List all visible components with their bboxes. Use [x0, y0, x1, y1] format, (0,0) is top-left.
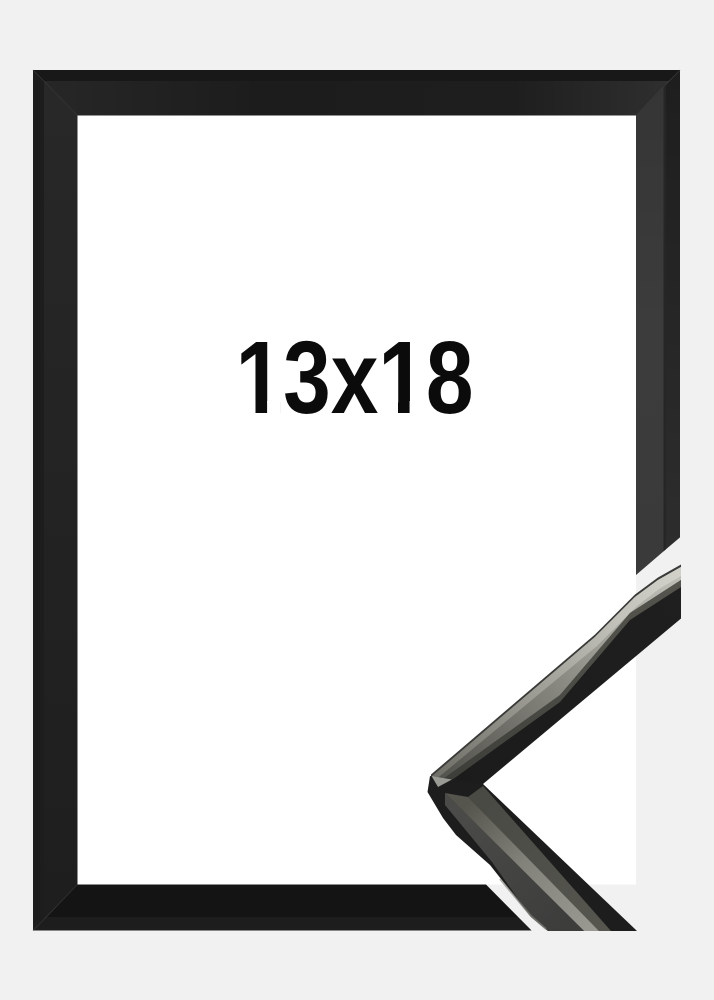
svg-text:13x18: 13x18 [236, 320, 474, 435]
